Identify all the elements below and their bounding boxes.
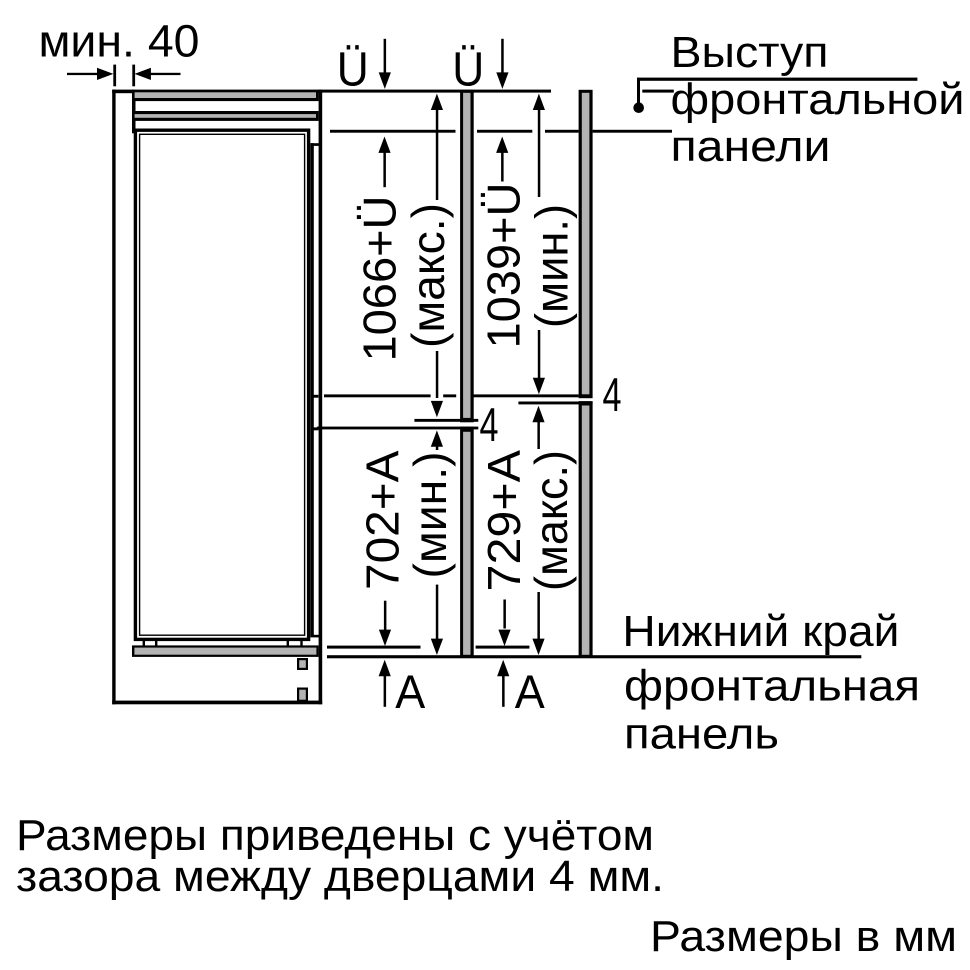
svg-text:зазора между дверцами 4 мм.: зазора между дверцами 4 мм.: [16, 852, 664, 901]
svg-text:(макс.): (макс.): [525, 450, 577, 591]
svg-text:Ü: Ü: [452, 43, 484, 97]
svg-text:фронтальная: фронтальная: [624, 662, 920, 711]
svg-text:панели: панели: [671, 122, 831, 171]
svg-text:4: 4: [480, 399, 499, 452]
svg-text:(мин.): (мин.): [404, 452, 456, 579]
svg-text:729+A: 729+A: [478, 450, 530, 592]
svg-text:фронтальной: фронтальной: [671, 75, 965, 124]
svg-text:1066+Ü: 1066+Ü: [354, 196, 406, 362]
svg-text:A: A: [395, 666, 425, 719]
svg-text:(макс.): (макс.): [402, 203, 454, 348]
svg-text:мин. 40: мин. 40: [39, 15, 200, 66]
svg-text:1039+Ü: 1039+Ü: [478, 183, 530, 349]
svg-text:Нижний край: Нижний край: [622, 607, 899, 656]
svg-text:Размеры в мм: Размеры в мм: [650, 912, 957, 961]
svg-text:Выступ: Выступ: [671, 28, 829, 77]
svg-text:Ü: Ü: [337, 43, 369, 97]
svg-text:панель: панель: [624, 710, 779, 759]
svg-text:4: 4: [603, 369, 622, 422]
svg-text:702+A: 702+A: [357, 450, 409, 590]
svg-text:A: A: [515, 666, 545, 719]
svg-text:(мин.): (мин.): [526, 204, 578, 328]
